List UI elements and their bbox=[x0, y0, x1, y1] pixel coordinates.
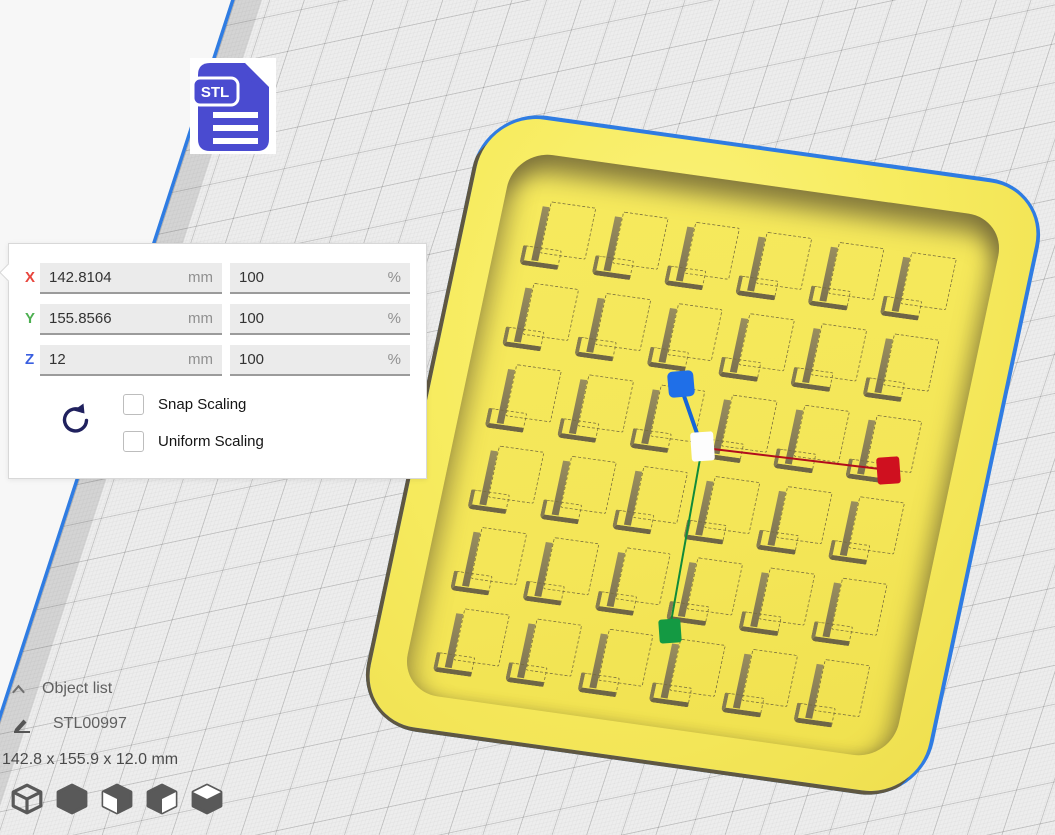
uniform-scaling-label: Uniform Scaling bbox=[158, 433, 264, 450]
axis-y-label: Y bbox=[25, 310, 35, 327]
mold-cavity bbox=[523, 283, 579, 341]
uniform-scaling-option[interactable]: Uniform Scaling bbox=[123, 431, 264, 451]
scale-y-percent-input[interactable] bbox=[230, 304, 410, 333]
uniform-scaling-checkbox[interactable] bbox=[123, 431, 144, 452]
scale-x-percent-input[interactable] bbox=[230, 263, 410, 292]
reset-scale-button[interactable] bbox=[59, 402, 91, 436]
scale-handle-center[interactable] bbox=[690, 431, 715, 462]
mold-cavity bbox=[632, 466, 688, 524]
mold-cavity bbox=[577, 374, 633, 432]
view-left-button[interactable] bbox=[100, 782, 134, 816]
scale-tool-panel: X mm % Y mm % Z mm bbox=[8, 243, 427, 479]
mold-cavity bbox=[453, 608, 509, 666]
scale-handle-x[interactable] bbox=[876, 456, 901, 485]
mold-cavity bbox=[828, 242, 884, 300]
stl-file-icon: STL bbox=[190, 58, 276, 154]
mold-cavity bbox=[543, 537, 599, 595]
scale-row-y: Y mm % bbox=[9, 304, 426, 335]
camera-view-toolbar bbox=[10, 782, 224, 816]
mold-cavity bbox=[814, 659, 870, 717]
mold-cavity bbox=[831, 578, 887, 636]
scale-x-mm-input[interactable] bbox=[40, 263, 222, 292]
axis-z-label: Z bbox=[25, 351, 34, 368]
object-list-item[interactable]: STL00997 bbox=[0, 714, 127, 734]
object-dimensions: 142.8 x 155.9 x 12.0 mm bbox=[2, 751, 178, 769]
mold-cavity bbox=[883, 333, 939, 391]
mold-cavity bbox=[849, 496, 905, 554]
view-3d-button[interactable] bbox=[10, 782, 44, 816]
mold-cavity bbox=[471, 527, 527, 585]
cura-3d-viewport: STL X mm bbox=[0, 0, 1055, 835]
mold-cavity bbox=[739, 313, 795, 371]
scale-y-mm-input[interactable] bbox=[40, 304, 222, 333]
mold-cavity bbox=[598, 629, 654, 687]
view-right-button[interactable] bbox=[145, 782, 179, 816]
scale-handle-z[interactable] bbox=[667, 370, 695, 398]
reset-arrow-icon bbox=[59, 402, 91, 436]
mold-cavity bbox=[811, 323, 867, 381]
mold-cavity bbox=[670, 639, 726, 697]
pencil-icon bbox=[12, 714, 32, 734]
mold-cavity bbox=[560, 456, 616, 514]
mold-cavity bbox=[759, 567, 815, 625]
mold-cavity bbox=[488, 446, 544, 504]
axis-x-label: X bbox=[25, 269, 35, 286]
mold-cavity bbox=[612, 211, 668, 269]
scale-z-mm-input[interactable] bbox=[40, 345, 222, 374]
mold-cavity bbox=[505, 364, 561, 422]
scale-handle-y[interactable] bbox=[658, 618, 682, 643]
mold-cavity bbox=[540, 201, 596, 259]
stl-badge-label: STL bbox=[201, 84, 229, 101]
mold-cavity bbox=[687, 557, 743, 615]
stl-document-icon: STL bbox=[190, 58, 276, 154]
mold-cavity bbox=[776, 486, 832, 544]
view-top-button[interactable] bbox=[190, 782, 224, 816]
object-list-header[interactable]: Object list bbox=[0, 680, 112, 698]
object-list-panel: Object list STL00997 142.8 x 155.9 x 12.… bbox=[0, 672, 260, 835]
mold-cavity bbox=[742, 649, 798, 707]
mold-cavity bbox=[704, 476, 760, 534]
mold-cavity bbox=[667, 303, 723, 361]
mold-cavity bbox=[900, 252, 956, 310]
mold-cavity bbox=[794, 405, 850, 463]
mold-cavity bbox=[595, 293, 651, 351]
mold-cavity bbox=[525, 618, 581, 676]
snap-scaling-checkbox[interactable] bbox=[123, 394, 144, 415]
scale-z-percent-input[interactable] bbox=[230, 345, 410, 374]
mold-cavity bbox=[756, 232, 812, 290]
collapse-chevron-icon bbox=[11, 683, 26, 695]
mold-cavity bbox=[615, 547, 671, 605]
view-solid-button[interactable] bbox=[55, 782, 89, 816]
object-list-title: Object list bbox=[42, 680, 112, 698]
scale-row-x: X mm % bbox=[9, 263, 426, 294]
snap-scaling-label: Snap Scaling bbox=[158, 396, 246, 413]
mold-cavity bbox=[722, 395, 778, 453]
snap-scaling-option[interactable]: Snap Scaling bbox=[123, 394, 246, 414]
scale-row-z: Z mm % bbox=[9, 345, 426, 376]
object-name: STL00997 bbox=[53, 715, 127, 733]
mold-cavity bbox=[684, 222, 740, 280]
